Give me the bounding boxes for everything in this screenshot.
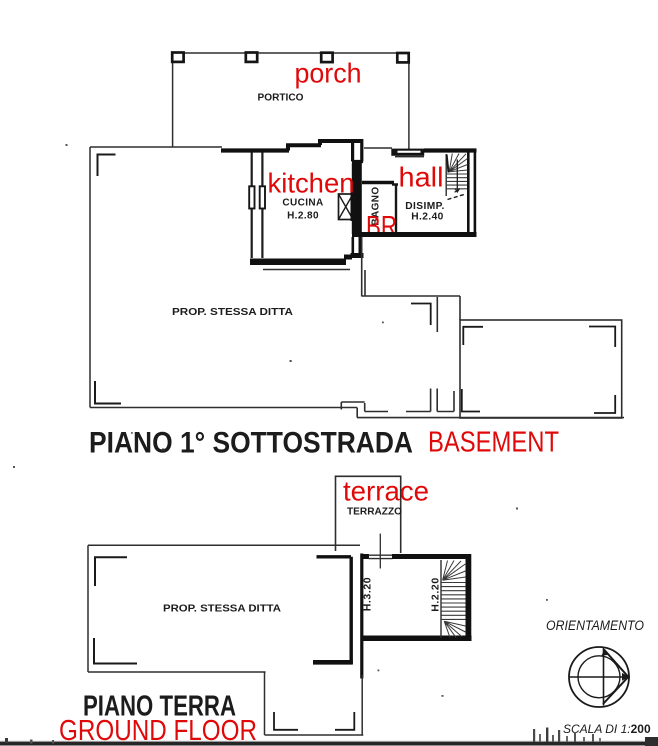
svg-text:BR: BR (366, 211, 397, 243)
svg-text:kitchen: kitchen (268, 168, 355, 199)
svg-text:TERRAZZO: TERRAZZO (347, 506, 402, 518)
svg-text:H.2.80: H.2.80 (287, 211, 319, 222)
svg-text:H.2.20: H.2.20 (430, 577, 442, 612)
svg-text:porch: porch (295, 57, 362, 88)
svg-text:terrace: terrace (343, 476, 429, 507)
svg-text:CUCINA: CUCINA (282, 198, 323, 209)
svg-text:PORTICO: PORTICO (258, 92, 304, 104)
svg-text:BASEMENT: BASEMENT (428, 427, 559, 459)
svg-text:PROP. STESSA DITTA: PROP. STESSA DITTA (163, 603, 281, 615)
svg-text:SCALA DI 1:200: SCALA DI 1:200 (563, 722, 651, 736)
svg-text:hall: hall (399, 162, 444, 193)
svg-text:PIANO 1° SOTTOSTRADA: PIANO 1° SOTTOSTRADA (89, 427, 413, 460)
svg-text:H.2.40: H.2.40 (411, 212, 443, 223)
svg-text:ORIENTAMENTO: ORIENTAMENTO (546, 618, 644, 633)
svg-text:H.3.20: H.3.20 (362, 577, 374, 612)
svg-text:DISIMP.: DISIMP. (405, 201, 444, 212)
svg-text:PROP. STESSA DITTA: PROP. STESSA DITTA (172, 306, 293, 318)
